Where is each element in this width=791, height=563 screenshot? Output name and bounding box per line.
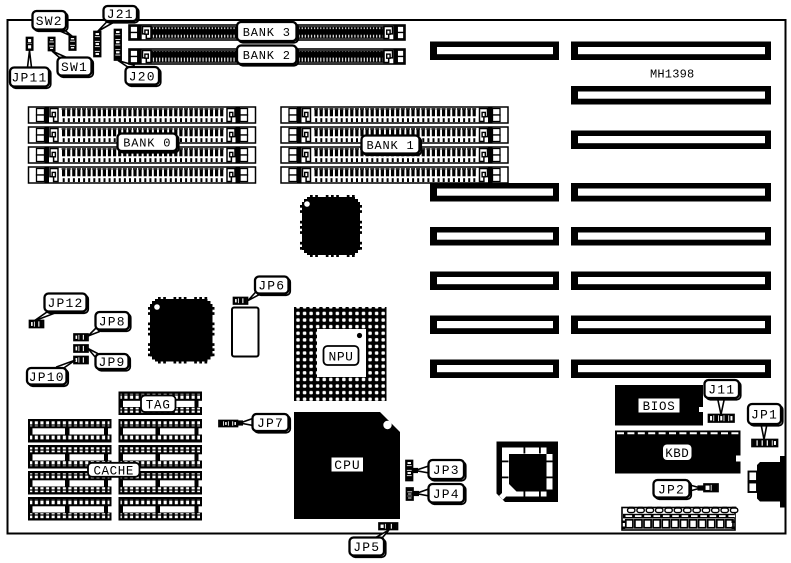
svg-text:JP4: JP4: [433, 487, 460, 502]
svg-text:MH1398: MH1398: [650, 68, 694, 82]
svg-text:SW1: SW1: [61, 60, 88, 75]
svg-text:J20: J20: [129, 69, 156, 84]
svg-text:JP2: JP2: [658, 482, 685, 497]
svg-text:BANK 3: BANK 3: [243, 26, 291, 40]
svg-text:JP9: JP9: [98, 355, 125, 370]
svg-text:JP5: JP5: [353, 540, 380, 555]
svg-text:CPU: CPU: [334, 458, 360, 473]
svg-text:CACHE: CACHE: [93, 464, 134, 478]
svg-text:NPU: NPU: [329, 350, 354, 365]
svg-text:JP3: JP3: [433, 463, 460, 478]
svg-text:JP7: JP7: [257, 416, 284, 431]
svg-text:JP12: JP12: [47, 296, 83, 311]
svg-text:BANK 0: BANK 0: [123, 137, 171, 151]
svg-text:JP11: JP11: [11, 71, 47, 86]
svg-text:KBD: KBD: [665, 447, 689, 461]
svg-text:JP6: JP6: [258, 279, 285, 294]
svg-text:TAG: TAG: [146, 399, 171, 413]
svg-text:BANK 2: BANK 2: [243, 49, 291, 63]
svg-text:SW2: SW2: [36, 14, 63, 29]
svg-text:BANK 1: BANK 1: [366, 139, 414, 153]
svg-text:JP10: JP10: [29, 370, 65, 385]
svg-text:J21: J21: [107, 7, 134, 22]
svg-text:JP1: JP1: [751, 408, 778, 423]
svg-text:J11: J11: [708, 383, 735, 398]
svg-text:BIOS: BIOS: [643, 400, 676, 414]
svg-text:JP8: JP8: [99, 314, 126, 329]
